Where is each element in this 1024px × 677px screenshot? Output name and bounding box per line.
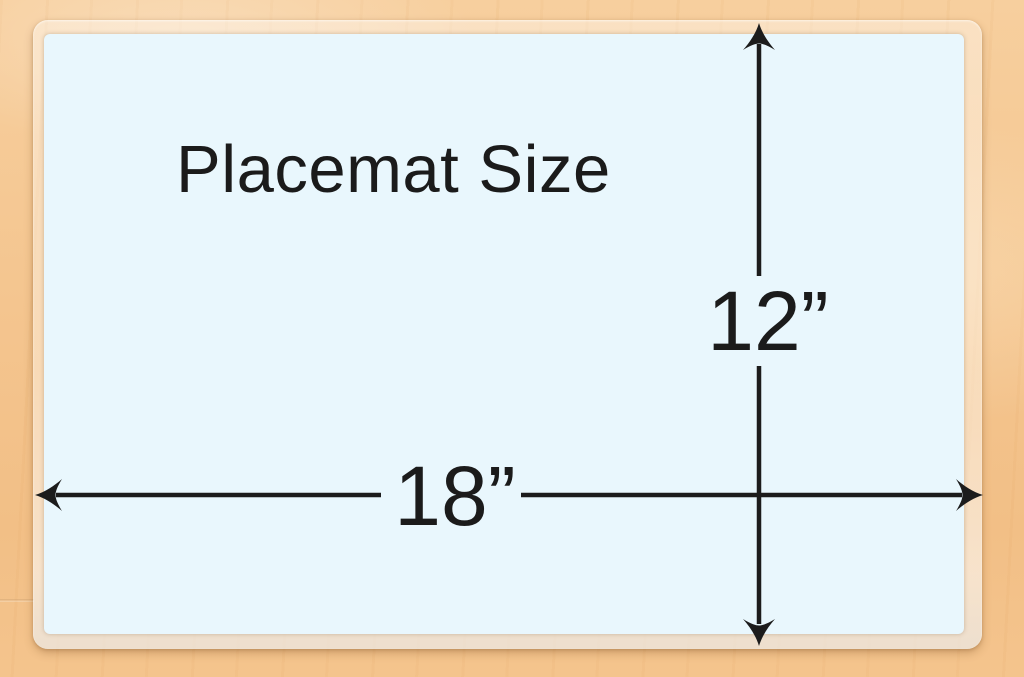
laminated-placemat <box>33 20 982 649</box>
placemat-title: Placemat Size <box>176 136 611 203</box>
height-label: 12” <box>707 279 828 363</box>
width-label: 18” <box>394 454 515 538</box>
wood-plank-seam <box>0 599 34 602</box>
wood-table-background: Placemat Size 18” 12” <box>0 0 1024 677</box>
